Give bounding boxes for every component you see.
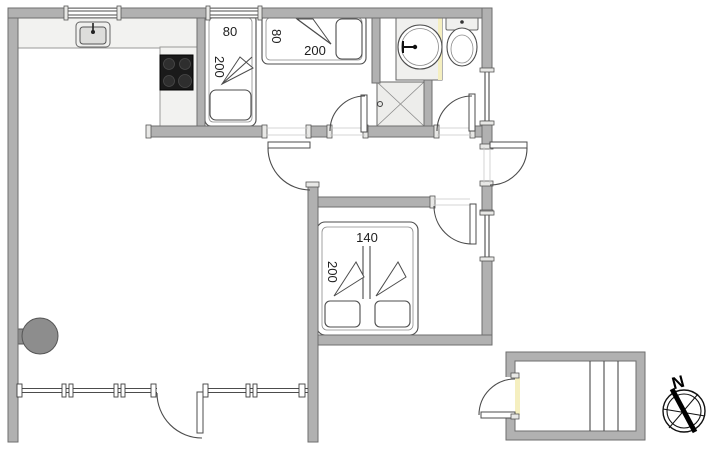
stove-cooktop-icon (160, 55, 193, 90)
pillow (210, 90, 251, 120)
door-living-hall (268, 142, 310, 190)
wall-kitchen-bedroom (197, 18, 205, 126)
wall-bedroom-north (318, 197, 433, 207)
bed3-width-label: 140 (356, 230, 378, 245)
pillow (325, 301, 360, 327)
bathroom-vanity (396, 18, 442, 80)
toilet-icon (446, 14, 478, 66)
bed1-width-label: 80 (223, 24, 237, 39)
wall-bedroom-west (308, 186, 318, 442)
bed2-width-label: 80 (269, 29, 284, 43)
wall-hall-north-a (150, 126, 266, 137)
outbuilding (479, 352, 645, 440)
shower-icon (377, 82, 424, 126)
wood-stove-icon (18, 318, 58, 354)
door-terrace (157, 392, 203, 438)
door-bedroom2 (330, 95, 367, 132)
pillow (336, 19, 362, 59)
floorplan-drawing: 80 200 80 200 140 200 N (0, 0, 718, 458)
wall-shower (424, 80, 432, 126)
glazing-south (17, 384, 308, 397)
bed1-length-label: 200 (212, 56, 227, 78)
bed3-length-label: 200 (325, 261, 340, 283)
wall-south-bedroom (308, 335, 492, 345)
wall-bathroom-west (372, 18, 380, 83)
wall-east-upper (482, 8, 492, 70)
door-entrance-east (490, 142, 527, 185)
pillow (375, 301, 410, 327)
bed2-length-label: 200 (304, 43, 326, 58)
window-east-bathroom (480, 68, 494, 125)
compass-rose (663, 389, 705, 432)
window-east-bedroom (480, 211, 494, 261)
floorplan-canvas: 80 200 80 200 140 200 N (0, 0, 718, 458)
wall-west (8, 8, 18, 442)
door-bedroom3 (434, 204, 476, 244)
kitchen-sink-icon (76, 22, 110, 47)
door-bathroom (437, 94, 475, 131)
glazing-posts (17, 384, 305, 397)
